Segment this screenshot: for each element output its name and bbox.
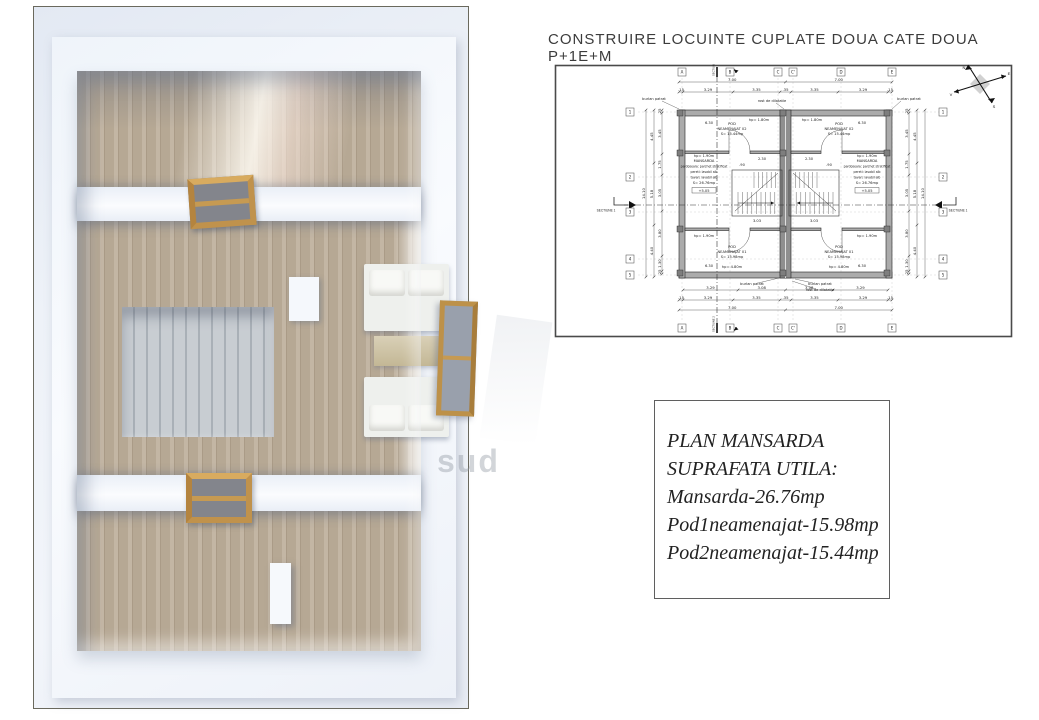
- dimension-label: 3.35: [752, 87, 761, 92]
- dimension-label: 4.45: [912, 132, 917, 141]
- plan-label: .90: [826, 163, 832, 167]
- wall-pier: [884, 110, 890, 116]
- dimension-label: .35: [782, 87, 789, 92]
- svg-text:SECTIUNE 2: SECTIUNE 2: [712, 64, 716, 76]
- sunlight-overlay: [77, 71, 421, 189]
- dimension-label: 4.40: [912, 246, 917, 255]
- dimension-label: 3.29: [704, 87, 713, 92]
- plan-label: MANSARDA: [857, 159, 878, 163]
- plan-label: hp= 1.90m: [857, 234, 878, 238]
- dimension-label: 3.29: [706, 285, 715, 290]
- plan-label: +5.05: [698, 189, 709, 193]
- dimension-label: 3.05: [657, 188, 662, 197]
- svg-text:S: S: [993, 104, 996, 109]
- page-title: CONSTRUIRE LOCUINTE CUPLATE DOUA CATE DO…: [548, 31, 1018, 65]
- grid-bubble-label: 4: [942, 256, 945, 261]
- plan-label: burlan patrat: [897, 97, 921, 101]
- grid-bubble-label: C': [791, 69, 795, 74]
- dimension-label: .35: [782, 295, 789, 300]
- plan-label: burlan patrat: [808, 282, 832, 286]
- dimension-label: .15: [678, 295, 685, 300]
- grid-bubble-label: C: [777, 325, 780, 330]
- plan-label: tavan: lavabil alb: [854, 176, 881, 180]
- plan-label: 6.30: [705, 121, 714, 125]
- sofa: [364, 264, 449, 331]
- dimension-label: 1.75: [657, 160, 662, 169]
- grid-bubble-label: A: [681, 69, 684, 74]
- grid-bubble-label: 1: [629, 109, 632, 114]
- dimension-label: 3.29: [859, 295, 868, 300]
- wall-pier: [677, 226, 683, 232]
- wall-pier: [780, 150, 786, 156]
- plan-label: hp= 1.90m: [694, 154, 715, 158]
- stair-stub-wall: [289, 277, 319, 321]
- dimension-label: 7.00: [835, 77, 844, 82]
- wall-pier: [780, 110, 786, 116]
- grid-bubble-label: 3: [942, 209, 945, 214]
- plan-label: S= 15.98mp: [721, 255, 744, 259]
- dimension-label: .25: [904, 108, 909, 115]
- plan-label: rost de dilatatie: [758, 99, 787, 103]
- watermark-blob: [480, 315, 553, 446]
- dimension-label: .25: [657, 269, 662, 276]
- svg-text:V: V: [950, 92, 953, 97]
- wall-pier: [677, 110, 683, 116]
- partition-wall: [77, 475, 421, 511]
- plan-label: S= 15.44mp: [721, 132, 744, 136]
- summary-line: Pod2neamenajat-15.44mp: [667, 539, 889, 567]
- grid-bubble-label: 5: [942, 272, 945, 277]
- watermark-text: sud: [437, 443, 500, 480]
- sofa-cushion: [369, 270, 405, 296]
- plan-label: NEAMENAJAT 02: [824, 127, 853, 131]
- plan-label: S= 15.44mp: [828, 132, 851, 136]
- grid-bubble-label: C': [791, 325, 795, 330]
- plan-label: POD: [728, 122, 736, 126]
- plan-label: 6.30: [858, 264, 867, 268]
- wall-pier: [780, 270, 786, 276]
- plan-label: 6.30: [858, 121, 867, 125]
- coffee-table: [374, 336, 439, 366]
- dimension-label: 5.18: [649, 189, 654, 198]
- dimension-label: 1.30: [904, 259, 909, 268]
- plan-label: MANSARDA: [694, 159, 715, 163]
- wall-pier: [884, 270, 890, 276]
- plan-label: hp= 1.90m: [857, 154, 878, 158]
- dimension-label: 14.10: [920, 187, 925, 198]
- dimension-label: 3.35: [810, 295, 819, 300]
- dimension-label: 3.29: [704, 295, 713, 300]
- plan-label: POD: [728, 245, 736, 249]
- dimension-label: 7.00: [835, 305, 844, 310]
- grid-bubble-label: D: [839, 69, 842, 74]
- skylight-hatch: [186, 473, 252, 523]
- dimension-label: 14.10: [641, 187, 646, 198]
- sofa-cushion: [408, 270, 444, 296]
- plan-label: hp= 4.80m: [829, 265, 850, 269]
- grid-bubble-label: D: [839, 325, 842, 330]
- plan-label: burlan patrat: [740, 282, 764, 286]
- plan-label: burlan patrat: [642, 97, 666, 101]
- svg-text:E: E: [1008, 71, 1011, 76]
- grid-bubble-label: 2: [942, 174, 945, 179]
- dimension-label: .25: [904, 269, 909, 276]
- svg-text:SECTIUNE 1: SECTIUNE 1: [597, 209, 616, 213]
- grid-bubble-label: B: [729, 325, 732, 330]
- dimension-label: 1.75: [904, 160, 909, 169]
- wall-pier: [884, 150, 890, 156]
- grid-bubble-label: B: [729, 69, 732, 74]
- plan-label: hp= 1.80m: [802, 118, 823, 122]
- plan-label: 3.03: [810, 219, 818, 223]
- dimension-label: 3.80: [657, 229, 662, 238]
- dimension-label: 4.45: [649, 132, 654, 141]
- plan-label: .90: [739, 163, 745, 167]
- dimension-label: 3.35: [810, 87, 819, 92]
- render-3d-mansarda: [33, 6, 469, 709]
- wood-floor: [77, 71, 421, 651]
- plan-sheet-page: sud CONSTRUIRE LOCUINTE CUPLATE DOUA CAT…: [0, 0, 1039, 720]
- wood-window: [436, 300, 478, 416]
- dimension-label: 3.80: [904, 229, 909, 238]
- sofa-cushion: [369, 405, 405, 431]
- summary-line: SUPRAFATA UTILA:: [667, 455, 889, 483]
- plan-label: S= 26.76mp: [693, 181, 716, 185]
- wall-pier: [677, 150, 683, 156]
- plan-label: NEAMENAJAT 01: [824, 250, 853, 254]
- skylight-hatch: [187, 175, 256, 229]
- plan-label: pardoseala: parchet stratificat: [844, 165, 892, 169]
- summary-line: Pod1neamenajat-15.98mp: [667, 511, 889, 539]
- plan-label: hp= 4.80m: [722, 265, 743, 269]
- plan-label: rost de dilatatie: [806, 288, 835, 292]
- grid-bubble-label: C: [777, 69, 780, 74]
- svg-text:N: N: [963, 65, 966, 70]
- wall-pier: [884, 226, 890, 232]
- dimension-label: 3.45: [657, 129, 662, 138]
- dimension-label: 7.00: [728, 305, 737, 310]
- grid-bubble-label: 5: [629, 272, 632, 277]
- plan-label: POD: [835, 245, 843, 249]
- dimension-label: .15: [887, 295, 894, 300]
- dimension-label: 4.40: [649, 246, 654, 255]
- summary-line: Mansarda-26.76mp: [667, 483, 889, 511]
- plan-label: +5.05: [861, 189, 872, 193]
- plan-label: hp= 1.90m: [694, 234, 715, 238]
- plan-label: 6.30: [705, 264, 714, 268]
- grid-bubble-label: 3: [629, 209, 632, 214]
- grid-bubble-label: 1: [942, 109, 945, 114]
- plan-label: 2.30: [805, 157, 814, 161]
- dimension-label: .15: [678, 87, 685, 92]
- partition-wall: [77, 187, 421, 221]
- dimension-label: 3.29: [856, 285, 865, 290]
- plan-label: pardoseala: parchet stratificat: [681, 165, 729, 169]
- grid-bubble-label: 4: [629, 256, 632, 261]
- dimension-label: 1.30: [657, 259, 662, 268]
- plan-label: NEAMENAJAT 02: [717, 127, 746, 131]
- dimension-label: 7.00: [728, 77, 737, 82]
- dimension-label: .15: [887, 87, 894, 92]
- plan-label: POD: [835, 122, 843, 126]
- dimension-label: 5.18: [912, 189, 917, 198]
- summary-line: PLAN MANSARDA: [667, 427, 889, 455]
- svg-text:SECTIUNE 1: SECTIUNE 1: [949, 209, 968, 213]
- plan-label: S= 15.98mp: [828, 255, 851, 259]
- stairs: [122, 307, 274, 437]
- summary-box: PLAN MANSARDA SUPRAFATA UTILA: Mansarda-…: [654, 400, 890, 599]
- plan-label: 2.30: [758, 157, 767, 161]
- svg-text:SECTIUNE 2: SECTIUNE 2: [712, 316, 716, 332]
- dimension-label: 3.29: [859, 87, 868, 92]
- dimension-label: .25: [657, 108, 662, 115]
- grid-bubble-label: 2: [629, 174, 632, 179]
- dimension-label: 3.05: [904, 188, 909, 197]
- plan-label: pereti: lavabil alb: [854, 170, 881, 174]
- plan-label: pereti: lavabil alb: [691, 170, 718, 174]
- plan-label: tavan: lavabil alb: [691, 176, 718, 180]
- floor-plan-drawing: SECTIUNE 1 SECTIUNE 1 SECTIUNE 2 SECTIUN…: [554, 64, 1013, 338]
- wall-pier: [780, 226, 786, 232]
- dimension-label: 3.45: [904, 129, 909, 138]
- dimension-label: 3.35: [752, 295, 761, 300]
- plan-label: NEAMENAJAT 01: [717, 250, 746, 254]
- grid-bubble-label: A: [681, 325, 684, 330]
- plan-label: hp= 1.80m: [749, 118, 770, 122]
- wall-pier: [677, 270, 683, 276]
- plan-label: S= 26.76mp: [856, 181, 879, 185]
- plan-label: 3.03: [753, 219, 761, 223]
- chimney-pillar: [270, 563, 291, 624]
